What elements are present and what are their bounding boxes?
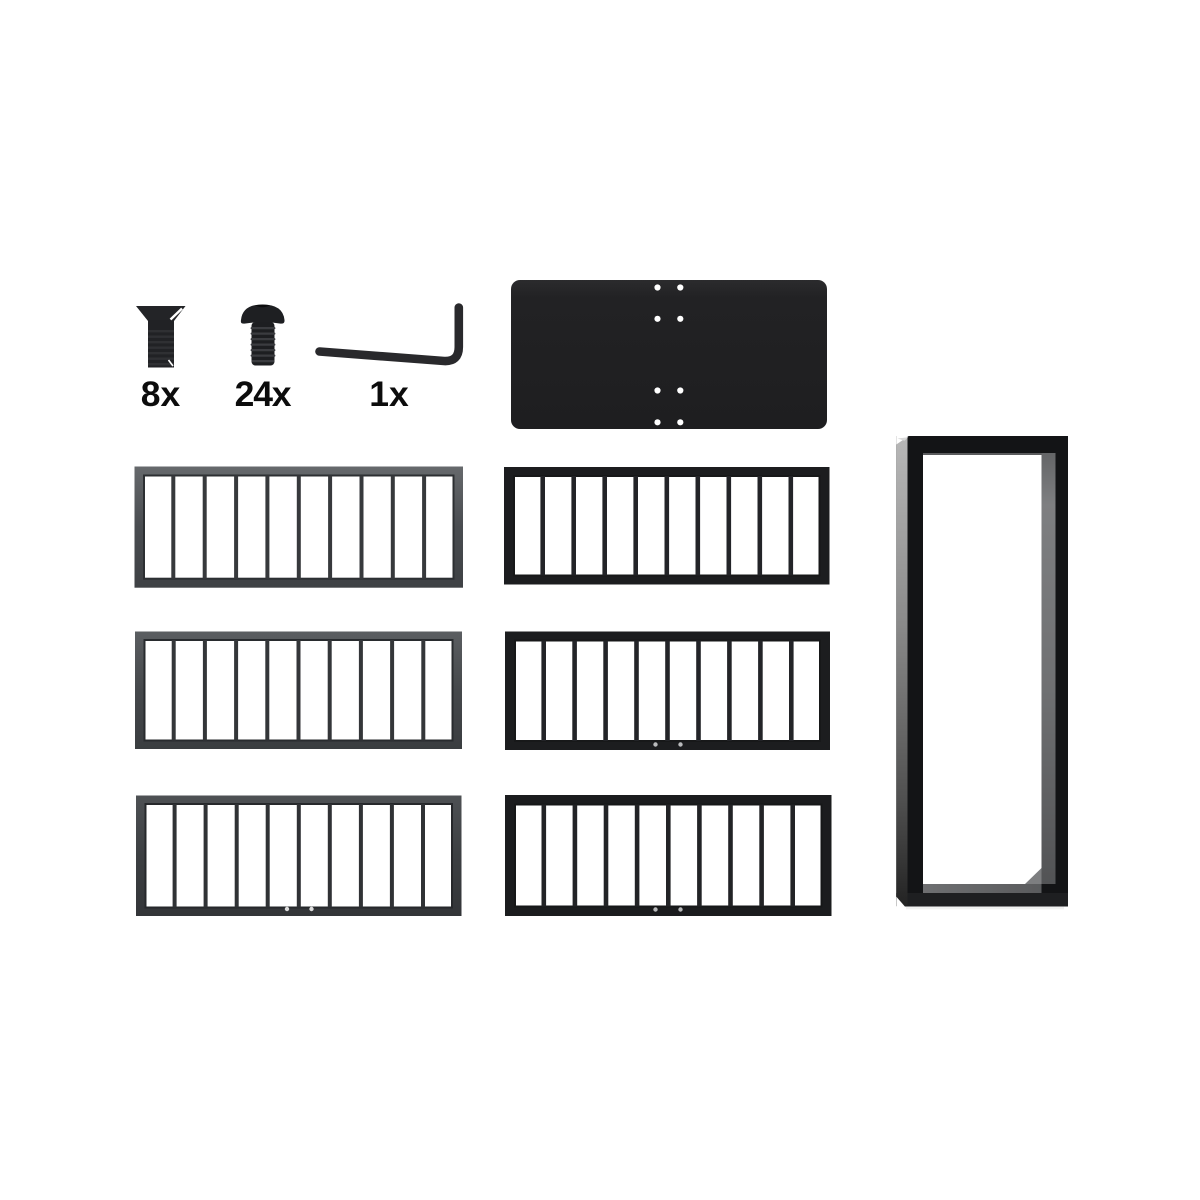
svg-text:8x: 8x [141,374,181,414]
svg-text:24x: 24x [235,374,292,414]
svg-text:1x: 1x [369,374,409,414]
